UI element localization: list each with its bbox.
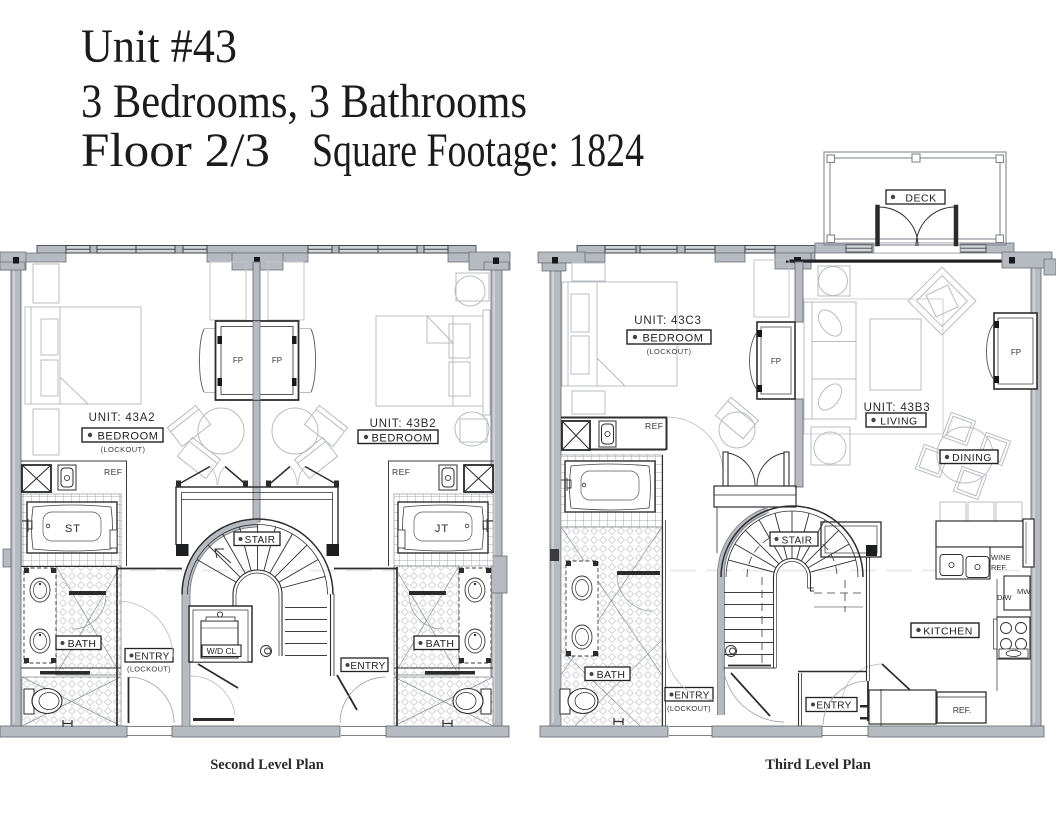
svg-text:FP: FP xyxy=(233,356,243,365)
svg-text:BEDROOM: BEDROOM xyxy=(642,333,703,345)
svg-text:(LOCKOUT): (LOCKOUT) xyxy=(127,665,171,674)
svg-text:(LOCKOUT): (LOCKOUT) xyxy=(647,347,692,356)
svg-text:ENTRY: ENTRY xyxy=(816,701,851,712)
svg-text:REF.: REF. xyxy=(953,705,971,715)
svg-text:LIVING: LIVING xyxy=(880,416,917,428)
svg-text:FP: FP xyxy=(272,356,282,365)
svg-text:UNIT: 43C3: UNIT: 43C3 xyxy=(634,315,701,327)
svg-text:WINE: WINE xyxy=(991,553,1011,562)
svg-text:3 Bedrooms, 3 Bathrooms: 3 Bedrooms, 3 Bathrooms xyxy=(81,75,527,128)
svg-text:BATH: BATH xyxy=(597,669,626,681)
svg-text:ENTRY: ENTRY xyxy=(350,661,385,672)
svg-text:UNIT: 43A2: UNIT: 43A2 xyxy=(89,412,156,424)
svg-text:ST: ST xyxy=(65,523,81,535)
svg-text:ENTRY: ENTRY xyxy=(134,652,169,663)
svg-text:Second Level Plan: Second Level Plan xyxy=(210,757,324,773)
svg-text:Square Footage: 1824: Square Footage: 1824 xyxy=(312,124,644,177)
svg-text:REF: REF xyxy=(645,421,664,431)
svg-text:ENTRY: ENTRY xyxy=(674,691,709,702)
svg-text:UNIT: 43B3: UNIT: 43B3 xyxy=(864,402,931,414)
svg-text:MW: MW xyxy=(1017,587,1031,596)
svg-text:UNIT: 43B2: UNIT: 43B2 xyxy=(370,418,437,430)
svg-text:STAIR: STAIR xyxy=(245,535,276,546)
svg-text:FP: FP xyxy=(1011,348,1021,357)
svg-text:STAIR: STAIR xyxy=(782,536,813,547)
svg-text:Third Level Plan: Third Level Plan xyxy=(765,757,871,773)
svg-text:DINING: DINING xyxy=(952,452,992,464)
svg-text:W/D CL: W/D CL xyxy=(207,646,237,656)
svg-text:Unit #43: Unit #43 xyxy=(81,20,237,73)
svg-text:BATH: BATH xyxy=(68,638,97,650)
svg-text:BATH: BATH xyxy=(426,638,455,650)
svg-text:REF: REF xyxy=(392,467,411,477)
svg-text:REF.: REF. xyxy=(991,563,1007,572)
svg-text:REF: REF xyxy=(104,467,123,477)
svg-text:(LOCKOUT): (LOCKOUT) xyxy=(667,704,711,713)
svg-text:(LOCKOUT): (LOCKOUT) xyxy=(101,445,146,454)
svg-text:D/W: D/W xyxy=(997,593,1013,602)
svg-text:DECK: DECK xyxy=(905,193,936,205)
svg-text:FP: FP xyxy=(771,357,781,366)
svg-text:JT: JT xyxy=(435,523,449,535)
svg-text:Floor 2/3: Floor 2/3 xyxy=(81,124,270,177)
svg-text:KITCHEN: KITCHEN xyxy=(923,626,973,638)
svg-text:BEDROOM: BEDROOM xyxy=(371,433,432,445)
svg-text:BEDROOM: BEDROOM xyxy=(97,431,158,443)
